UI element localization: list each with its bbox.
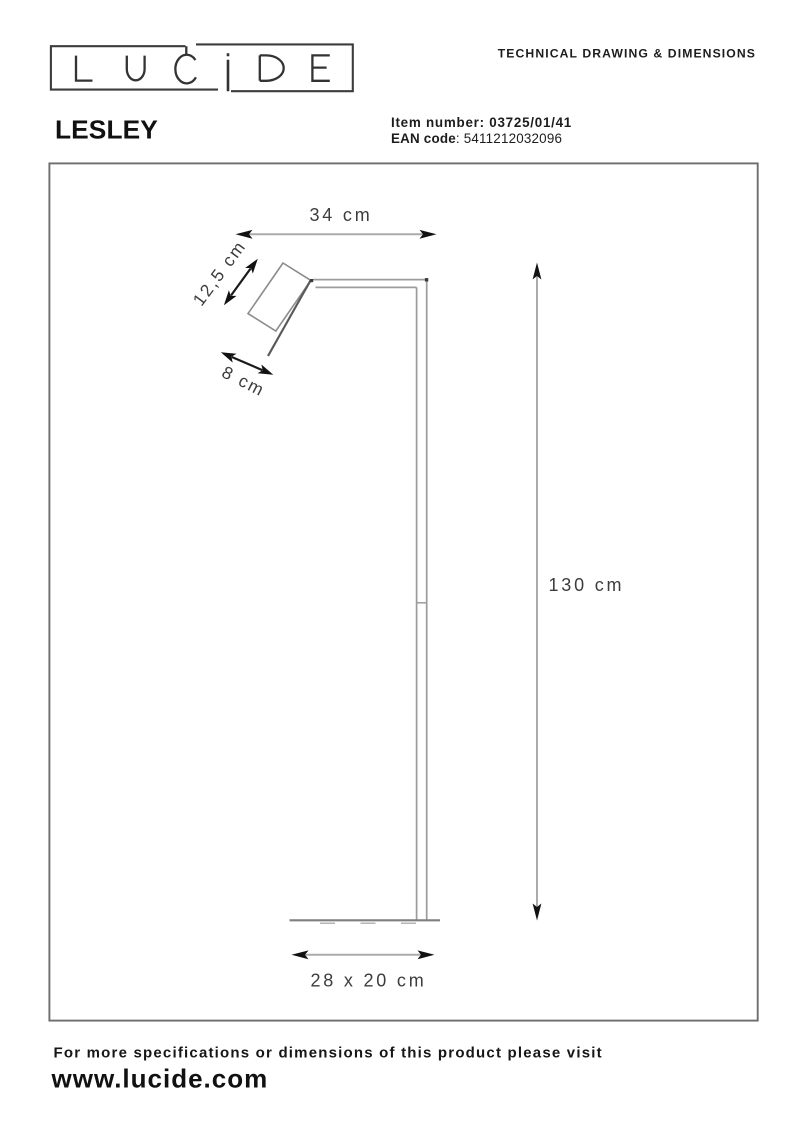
svg-text:34 cm: 34 cm bbox=[309, 205, 372, 225]
svg-text:Item number: 03725/01/41: Item number: 03725/01/41 bbox=[391, 115, 572, 130]
svg-text:LESLEY: LESLEY bbox=[55, 115, 158, 145]
svg-text:28 x 20 cm: 28 x 20 cm bbox=[310, 971, 426, 991]
svg-text:8 cm: 8 cm bbox=[219, 362, 269, 401]
svg-text:www.lucide.com: www.lucide.com bbox=[51, 1064, 269, 1094]
svg-text:EAN code: 5411212032096: EAN code: 5411212032096 bbox=[391, 131, 562, 146]
svg-text:TECHNICAL DRAWING & DIMENSIONS: TECHNICAL DRAWING & DIMENSIONS bbox=[498, 47, 756, 61]
svg-text:For more specifications or dim: For more specifications or dimensions of… bbox=[54, 1045, 603, 1062]
svg-text:130 cm: 130 cm bbox=[549, 575, 625, 595]
svg-text:12,5 cm: 12,5 cm bbox=[189, 236, 250, 309]
